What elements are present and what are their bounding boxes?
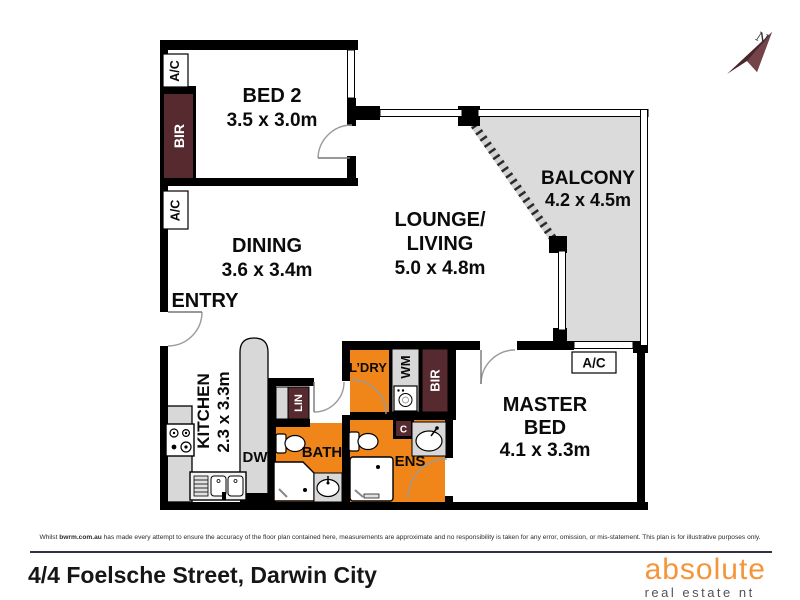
dining-label: DINING <box>232 235 302 257</box>
logo-secondary-text: real estate nt <box>645 585 766 600</box>
lounge-dims: 5.0 x 4.8m <box>395 258 486 279</box>
dw-label: DW <box>243 449 269 466</box>
entry-label: ENTRY <box>171 290 239 312</box>
balcony-dims: 4.2 x 4.5m <box>545 190 631 210</box>
sink-bowl-right <box>228 476 243 496</box>
dining-dims: 3.6 x 3.4m <box>222 260 313 281</box>
agency-logo: absolute real estate nt <box>645 555 766 600</box>
lounge-label-2: LIVING <box>407 233 474 255</box>
ens-basin <box>416 431 442 451</box>
entry-door-arc <box>168 312 202 346</box>
ldry-label: L’DRY <box>349 360 387 375</box>
c-label: C <box>400 425 407 436</box>
lounge-top-window <box>380 110 462 117</box>
master-door-arc <box>481 350 515 384</box>
kitchen-island <box>240 338 268 494</box>
bed2-window <box>348 50 355 98</box>
floorplan-drawing: BED 2 3.5 x 3.0m DINING 3.6 x 3.4m LOUNG… <box>0 0 800 600</box>
disclaimer-post: has made every attempt to ensure the acc… <box>102 534 761 541</box>
wm-label: WM <box>398 355 413 378</box>
disclaimer-brand: bwrm.com.au <box>59 534 102 541</box>
balcony-left-window <box>559 251 566 330</box>
ldry-floor <box>350 349 389 413</box>
lin-shelf <box>276 387 288 419</box>
bath-shower <box>274 462 314 501</box>
ac-label-bed2: A/C <box>168 60 182 82</box>
ens-toilet-bowl <box>358 434 378 450</box>
master-label-1: MASTER <box>503 394 588 416</box>
floorplan-page: BED 2 3.5 x 3.0m DINING 3.6 x 3.4m LOUNG… <box>0 0 800 600</box>
bath-door-arc <box>314 382 344 412</box>
bed2-label: BED 2 <box>243 85 302 107</box>
ac-label-dining: A/C <box>169 200 183 222</box>
compass-n-label: N <box>753 29 771 48</box>
bed2-dims: 3.5 x 3.0m <box>227 110 318 131</box>
balcony-right-railing <box>641 110 648 346</box>
kitchen-dims: 2.3 x 3.3m <box>214 371 233 452</box>
master-dims: 4.1 x 3.3m <box>500 440 591 461</box>
disclaimer-text: Whilst bwrm.com.au has made every attemp… <box>0 534 800 541</box>
sink-drainer <box>194 476 208 496</box>
ac-label-master: A/C <box>582 356 606 371</box>
bir-bed2-label: BIR <box>171 124 187 148</box>
balcony-label: BALCONY <box>541 168 635 189</box>
stove <box>166 424 194 456</box>
disclaimer-pre: Whilst <box>39 534 59 541</box>
compass: N <box>727 29 772 74</box>
bath-label: BATH <box>302 444 343 461</box>
master-top-window <box>574 342 633 349</box>
lounge-label-1: LOUNGE/ <box>394 209 486 231</box>
kitchen-label: KITCHEN <box>194 373 213 449</box>
bed2-door-arc <box>318 125 352 158</box>
ens-label: ENS <box>395 453 426 470</box>
lin-label: LIN <box>293 394 305 412</box>
logo-primary-text: absolute <box>645 555 766 585</box>
master-label-2: BED <box>524 417 566 439</box>
property-address: 4/4 Foelsche Street, Darwin City <box>28 562 377 589</box>
washing-machine <box>394 386 417 411</box>
balcony-top-railing <box>478 110 648 117</box>
bir-master-label: BIR <box>428 369 443 392</box>
